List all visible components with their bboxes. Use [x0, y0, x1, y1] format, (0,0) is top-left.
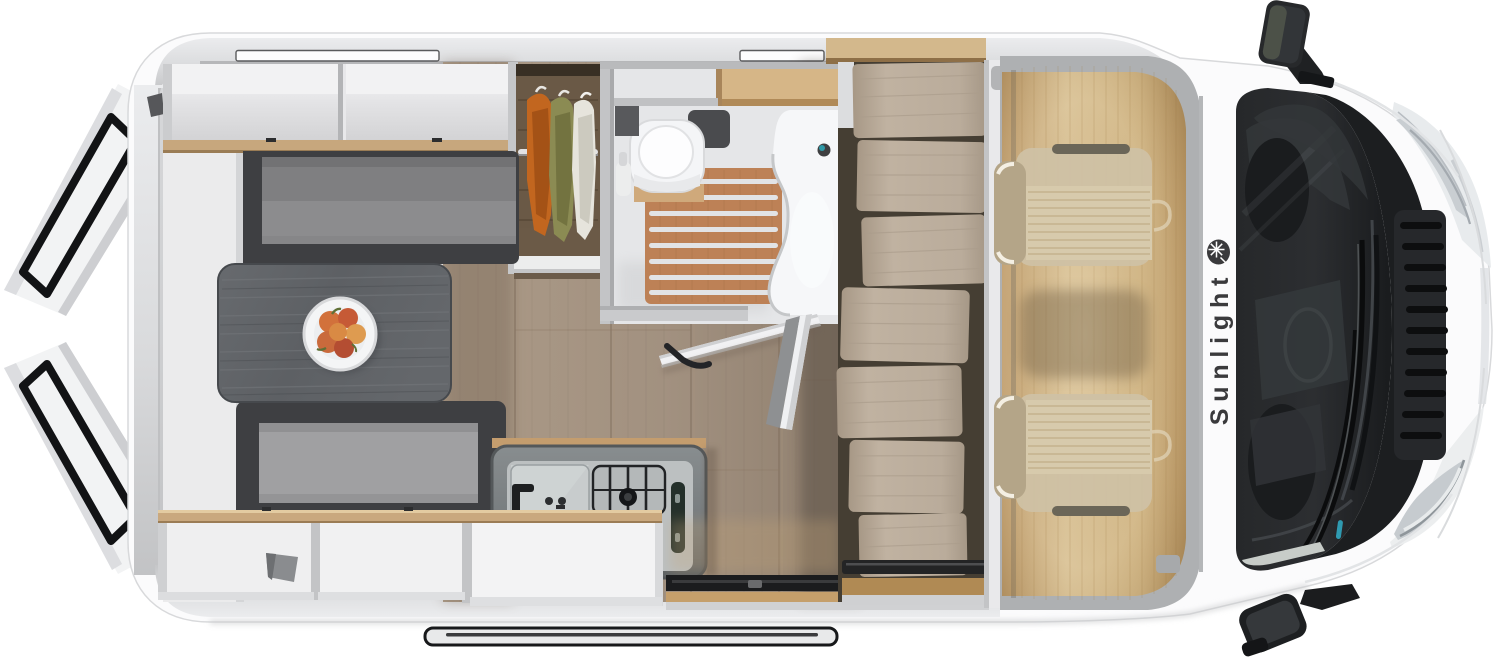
svg-text:Sunlight: Sunlight — [1206, 271, 1234, 425]
